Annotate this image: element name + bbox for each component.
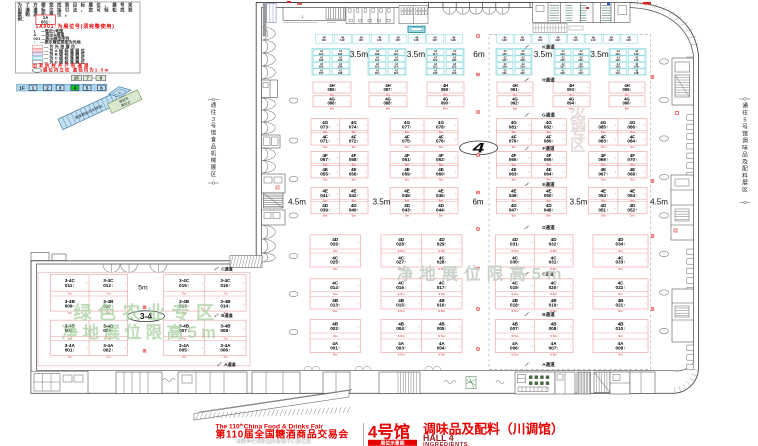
svg-text:往: 往 <box>211 108 217 116</box>
svg-text:057↑: 057↑ <box>320 157 330 162</box>
svg-text:6m: 6m <box>547 163 552 167</box>
svg-text:9m: 9m <box>333 334 338 338</box>
svg-text:5m: 5m <box>323 130 328 134</box>
svg-text:品: 品 <box>211 143 216 150</box>
svg-text:120↑: 120↑ <box>452 58 458 62</box>
svg-text:148↑: 148↑ <box>634 71 640 75</box>
svg-text:5m: 5m <box>405 130 410 134</box>
svg-text:042↑: 042↑ <box>349 193 359 198</box>
svg-text:9m: 9m <box>618 309 623 313</box>
svg-text:5m: 5m <box>138 285 148 292</box>
svg-text:3.5m: 3.5m <box>373 198 391 207</box>
svg-text:085↑: 085↑ <box>327 87 336 92</box>
svg-text:3.5m: 3.5m <box>407 49 426 59</box>
svg-text:043↑: 043↑ <box>402 207 412 212</box>
svg-text:089↑: 089↑ <box>441 87 450 92</box>
svg-text:007↑: 007↑ <box>510 326 520 331</box>
svg-text:7m: 7m <box>68 292 73 296</box>
svg-text:5m: 5m <box>547 130 552 134</box>
svg-text:3.5m: 3.5m <box>534 49 553 59</box>
svg-text:052↑: 052↑ <box>627 207 637 212</box>
svg-text:031↑: 031↑ <box>549 260 559 265</box>
svg-text:060↑: 060↑ <box>436 172 446 177</box>
svg-text:135↑: 135↑ <box>395 38 401 42</box>
svg-text:5: 5 <box>86 86 89 92</box>
svg-text:7m: 7m <box>182 355 187 359</box>
svg-text:083↑: 083↑ <box>598 139 608 144</box>
svg-text:016↑: 016↑ <box>396 285 406 290</box>
svg-text:及: 及 <box>742 159 748 166</box>
svg-text:102↑: 102↑ <box>338 52 344 56</box>
svg-text:128↑: 128↑ <box>520 58 526 62</box>
svg-text:展位内立柱 直径均为1.5m: 展位内立柱 直径均为1.5m <box>43 67 109 74</box>
svg-text:2: 2 <box>46 86 49 92</box>
svg-text:6m: 6m <box>473 49 485 59</box>
svg-text:146↑: 146↑ <box>634 65 640 69</box>
svg-text:6m: 6m <box>439 163 444 167</box>
svg-text:116↑: 116↑ <box>394 71 399 75</box>
svg-text:展: 展 <box>742 180 748 187</box>
svg-text:食: 食 <box>211 136 217 144</box>
svg-text:086↑: 086↑ <box>327 101 336 106</box>
svg-text:6.5m: 6.5m <box>550 292 557 296</box>
svg-text:134↑: 134↑ <box>578 52 584 56</box>
svg-text:6.5m: 6.5m <box>512 292 519 296</box>
svg-text:002↑: 002↑ <box>330 326 340 331</box>
svg-text:展: 展 <box>211 164 217 171</box>
svg-text:019↑: 019↑ <box>510 285 520 290</box>
svg-text:081↑: 081↑ <box>509 124 519 129</box>
svg-text:5m: 5m <box>512 130 517 134</box>
svg-text:073↑: 073↑ <box>320 124 330 129</box>
svg-text:066↑: 066↑ <box>544 157 554 162</box>
svg-text:072↑: 072↑ <box>349 139 359 144</box>
svg-text:076↑: 076↑ <box>436 139 446 144</box>
svg-text:6.5m: 6.5m <box>398 334 405 338</box>
svg-text:8m: 8m <box>625 107 630 111</box>
svg-text:馆: 馆 <box>742 130 748 138</box>
svg-text:044↑: 044↑ <box>436 207 446 212</box>
svg-text:7m: 7m <box>68 311 73 315</box>
svg-text:6m: 6m <box>512 163 517 167</box>
svg-text:7m: 7m <box>106 292 111 296</box>
svg-text:5m: 5m <box>630 130 635 134</box>
svg-text:039↑: 039↑ <box>320 207 330 212</box>
svg-text:063↑: 063↑ <box>509 172 519 177</box>
svg-text:6m: 6m <box>323 199 328 203</box>
svg-text:6m: 6m <box>405 163 410 167</box>
svg-text:净地展位限高5m: 净地展位限高5m <box>62 322 221 342</box>
svg-text:料: 料 <box>742 172 748 180</box>
svg-text:095↑: 095↑ <box>622 87 631 92</box>
svg-text:8m: 8m <box>330 107 335 111</box>
svg-text:144↑: 144↑ <box>591 38 597 42</box>
svg-text:046↑: 046↑ <box>436 193 446 198</box>
svg-text:5m: 5m <box>601 130 606 134</box>
svg-text:8: 8 <box>100 76 103 81</box>
svg-text:9m: 9m <box>618 267 623 271</box>
svg-text:4: 4 <box>73 86 76 92</box>
svg-text:031↑: 031↑ <box>510 242 520 247</box>
svg-text:5m: 5m <box>512 145 517 149</box>
svg-text:026↑: 026↑ <box>330 242 340 247</box>
svg-text:005↑: 005↑ <box>179 348 189 353</box>
svg-text:6m: 6m <box>512 199 517 203</box>
svg-text:130↑: 130↑ <box>520 65 526 69</box>
svg-text:通: 通 <box>742 102 748 110</box>
svg-text:G通道: G通道 <box>542 112 555 119</box>
svg-text:3.5m: 3.5m <box>590 49 609 59</box>
svg-text:109↑: 109↑ <box>375 52 381 56</box>
svg-text:6m: 6m <box>352 199 357 203</box>
svg-text:028↑: 028↑ <box>396 242 406 247</box>
svg-text:6.5m: 6.5m <box>398 249 405 253</box>
svg-text:090↑: 090↑ <box>441 101 450 106</box>
svg-text:B通道: B通道 <box>221 312 233 319</box>
svg-text:B通道: B通道 <box>542 311 555 318</box>
svg-text:5m: 5m <box>439 214 444 218</box>
svg-text:112↑: 112↑ <box>394 58 399 62</box>
svg-text:002↑: 002↑ <box>103 348 113 353</box>
svg-text:118↑: 118↑ <box>452 52 457 56</box>
svg-text:140↑: 140↑ <box>578 71 584 75</box>
svg-text:9m: 9m <box>333 309 338 313</box>
svg-text:006↑: 006↑ <box>510 346 520 351</box>
svg-text:114↑: 114↑ <box>394 65 399 69</box>
svg-text:5m: 5m <box>439 178 444 182</box>
svg-text:145↑: 145↑ <box>609 38 615 42</box>
svg-text:9m: 9m <box>333 249 338 253</box>
svg-text:069↑: 069↑ <box>598 157 608 162</box>
svg-text:6m: 6m <box>630 199 635 203</box>
svg-text:6m: 6m <box>601 199 606 203</box>
svg-text:082↑: 082↑ <box>544 124 554 129</box>
svg-text:7m: 7m <box>223 337 228 341</box>
svg-text:015↑: 015↑ <box>396 303 406 308</box>
svg-text:055↑: 055↑ <box>320 172 330 177</box>
svg-text:053↑: 053↑ <box>598 193 608 198</box>
svg-text:配: 配 <box>742 166 748 173</box>
svg-text:号: 号 <box>742 124 748 131</box>
svg-text:110↑: 110↑ <box>394 52 399 56</box>
svg-text:6.5m: 6.5m <box>550 249 557 253</box>
svg-text:096↑: 096↑ <box>622 101 631 106</box>
svg-text:132↑: 132↑ <box>340 38 346 42</box>
svg-text:净地展位限高5m: 净地展位限高5m <box>397 264 568 284</box>
svg-text:049↑: 049↑ <box>509 193 519 198</box>
svg-text:064↑: 064↑ <box>544 172 554 177</box>
svg-text:139↑: 139↑ <box>560 71 566 75</box>
svg-text:6.5m: 6.5m <box>398 309 405 313</box>
svg-text:F通道: F通道 <box>543 145 555 152</box>
svg-text:019↑: 019↑ <box>549 303 559 308</box>
svg-text:6.5m: 6.5m <box>438 334 445 338</box>
svg-text:6.5m: 6.5m <box>550 334 557 338</box>
svg-text:047↑: 047↑ <box>509 207 519 212</box>
svg-text:062↑: 062↑ <box>436 157 446 162</box>
svg-text:087↑: 087↑ <box>383 87 392 92</box>
svg-text:5m: 5m <box>405 178 410 182</box>
svg-text:071↑: 071↑ <box>320 139 330 144</box>
svg-text:145↑: 145↑ <box>615 65 621 69</box>
svg-text:124↑: 124↑ <box>452 71 458 75</box>
svg-text:1F: 1F <box>19 86 25 92</box>
svg-text:7m: 7m <box>223 355 228 359</box>
svg-text:6m: 6m <box>547 199 552 203</box>
svg-text:004↑: 004↑ <box>396 326 406 331</box>
svg-text:068↑: 068↑ <box>627 172 637 177</box>
svg-text:111↑: 111↑ <box>375 58 380 62</box>
svg-text:040↑: 040↑ <box>349 207 359 212</box>
svg-text:133↑: 133↑ <box>358 38 364 42</box>
svg-text:5: 5 <box>743 118 746 124</box>
svg-text:味: 味 <box>742 144 748 152</box>
svg-text:140↑: 140↑ <box>520 38 526 42</box>
svg-text:003↑: 003↑ <box>396 346 406 351</box>
svg-text:6.5m: 6.5m <box>438 292 445 296</box>
svg-text:6.5m: 6.5m <box>512 249 519 253</box>
svg-text:5m: 5m <box>630 178 635 182</box>
svg-text:013↑: 013↑ <box>330 303 340 308</box>
svg-text:4.5m: 4.5m <box>650 198 668 207</box>
svg-text:6m: 6m <box>472 198 483 207</box>
svg-text:141↑: 141↑ <box>615 52 621 56</box>
svg-text:032↑: 032↑ <box>549 242 559 247</box>
svg-text:机: 机 <box>211 149 217 157</box>
svg-text:092↑: 092↑ <box>510 101 519 106</box>
svg-text:136↑: 136↑ <box>578 58 584 62</box>
svg-text:125↑: 125↑ <box>502 52 508 56</box>
svg-text:054↑: 054↑ <box>627 193 637 198</box>
svg-text:022↑: 022↑ <box>616 285 626 290</box>
svg-text:2F: 2F <box>74 76 80 81</box>
svg-text:E通道: E通道 <box>542 181 555 188</box>
svg-text:007↑: 007↑ <box>549 346 559 351</box>
svg-text:成都世纪城新国际会展中心展位图: 成都世纪城新国际会展中心展位图 <box>236 438 311 445</box>
svg-text:077↑: 077↑ <box>402 124 412 129</box>
svg-text:5m: 5m <box>630 214 635 218</box>
svg-text:7m: 7m <box>68 355 73 359</box>
svg-text:056↑: 056↑ <box>349 172 359 177</box>
svg-text:088↑: 088↑ <box>383 101 392 106</box>
svg-text:C通道: C通道 <box>221 265 233 272</box>
svg-text:103↑: 103↑ <box>319 58 325 62</box>
svg-text:134↑: 134↑ <box>377 38 383 42</box>
svg-text:119↑: 119↑ <box>433 58 438 62</box>
svg-text:139↑: 139↑ <box>502 38 508 42</box>
svg-text:027↑: 027↑ <box>396 260 406 265</box>
svg-text:up: up <box>118 91 122 95</box>
svg-text:K通道: K通道 <box>542 44 555 51</box>
svg-text:132↑: 132↑ <box>520 71 526 75</box>
svg-text:093↑: 093↑ <box>567 87 576 92</box>
svg-text:3.5m: 3.5m <box>350 49 369 59</box>
svg-text:5m: 5m <box>630 145 635 149</box>
svg-text:080↑: 080↑ <box>544 139 554 144</box>
svg-text:5m: 5m <box>352 130 357 134</box>
svg-text:135↑: 135↑ <box>560 58 566 62</box>
svg-text:058↑: 058↑ <box>349 157 359 162</box>
svg-text:9m: 9m <box>618 334 623 338</box>
svg-text:6m: 6m <box>630 163 635 167</box>
svg-text:5m: 5m <box>547 178 552 182</box>
svg-text:4.5m: 4.5m <box>288 198 306 207</box>
svg-text:7m: 7m <box>223 292 228 296</box>
svg-text:1.: 1. <box>302 15 305 19</box>
svg-text:5m: 5m <box>439 145 444 149</box>
svg-text:051↑: 051↑ <box>598 207 608 212</box>
svg-text:5m: 5m <box>512 214 517 218</box>
svg-text:例：: 例： <box>18 15 27 22</box>
svg-text:074↑: 074↑ <box>349 124 359 129</box>
svg-text:113↑: 113↑ <box>375 65 380 69</box>
svg-text:7m: 7m <box>182 292 187 296</box>
svg-text:5m: 5m <box>512 178 517 182</box>
svg-text:041↑: 041↑ <box>320 193 330 198</box>
svg-text:141↑: 141↑ <box>538 38 544 42</box>
svg-text:8m: 8m <box>443 107 448 111</box>
svg-text:5m: 5m <box>405 145 410 149</box>
svg-text:4号馆: 4号馆 <box>368 422 410 442</box>
svg-text:033↑: 033↑ <box>616 260 626 265</box>
svg-text:6m: 6m <box>352 163 357 167</box>
svg-text:9m: 9m <box>333 292 338 296</box>
svg-text:048↑: 048↑ <box>544 207 554 212</box>
svg-text:014↑: 014↑ <box>220 303 230 308</box>
svg-text:6.5m: 6.5m <box>512 309 519 313</box>
svg-text:6.5m: 6.5m <box>438 249 445 253</box>
svg-text:5m: 5m <box>439 130 444 134</box>
svg-text:050↑: 050↑ <box>544 193 554 198</box>
svg-text:086↑: 086↑ <box>627 124 637 129</box>
svg-text:6m: 6m <box>405 199 410 203</box>
svg-text:004↑: 004↑ <box>437 346 447 351</box>
svg-text:143↑: 143↑ <box>573 38 579 42</box>
svg-text:5m: 5m <box>323 145 328 149</box>
svg-text:5m: 5m <box>547 214 552 218</box>
svg-text:6.5m: 6.5m <box>398 292 405 296</box>
svg-text:6.5m: 6.5m <box>512 334 519 338</box>
svg-text:5m: 5m <box>323 178 328 182</box>
svg-text:H通道: H通道 <box>542 76 555 83</box>
svg-text:往: 往 <box>742 109 748 117</box>
svg-text:8m: 8m <box>386 107 391 111</box>
svg-text:INGREDIENTS: INGREDIENTS <box>423 442 468 446</box>
svg-text:067↑: 067↑ <box>598 172 608 177</box>
svg-text:029↑: 029↑ <box>437 242 447 247</box>
svg-text:6: 6 <box>100 86 103 92</box>
svg-text:016↑: 016↑ <box>437 303 447 308</box>
svg-text:085↑: 085↑ <box>598 124 608 129</box>
svg-text:001↑: 001↑ <box>330 346 340 351</box>
svg-text:5m: 5m <box>601 178 606 182</box>
svg-text:区: 区 <box>742 187 748 194</box>
svg-text:6.5m: 6.5m <box>398 352 405 356</box>
svg-text:061↑: 061↑ <box>402 157 412 162</box>
svg-text:6.5m: 6.5m <box>438 309 445 313</box>
svg-text:070↑: 070↑ <box>627 157 637 162</box>
svg-text:6.5m: 6.5m <box>438 352 445 356</box>
svg-text:012↑: 012↑ <box>103 283 113 288</box>
svg-text:147↑: 147↑ <box>615 71 621 75</box>
svg-text:030↑: 030↑ <box>510 260 520 265</box>
svg-text:142↑: 142↑ <box>555 38 561 42</box>
svg-text:1: 1 <box>32 86 35 92</box>
svg-text:馆: 馆 <box>211 129 217 137</box>
svg-text:075↑: 075↑ <box>402 139 412 144</box>
svg-text:品: 品 <box>742 152 748 159</box>
svg-text:绿色农业专区: 绿色农业专区 <box>74 302 221 323</box>
svg-text:6m: 6m <box>323 163 328 167</box>
svg-text:6.5m: 6.5m <box>550 352 557 356</box>
svg-text:018↑: 018↑ <box>510 303 520 308</box>
svg-text:104↑: 104↑ <box>338 58 344 62</box>
svg-text:008↑: 008↑ <box>220 328 230 333</box>
svg-text:021↑: 021↑ <box>616 303 626 308</box>
svg-text:5m: 5m <box>323 214 328 218</box>
svg-text:059↑: 059↑ <box>402 172 412 177</box>
svg-text:123↑: 123↑ <box>433 71 439 75</box>
svg-text:D通道: D通道 <box>542 224 555 231</box>
svg-text:001↑: 001↑ <box>65 348 75 353</box>
svg-text:078↑: 078↑ <box>436 124 446 129</box>
svg-text:4: 4 <box>471 140 484 155</box>
svg-text:014↑: 014↑ <box>330 285 340 290</box>
svg-text:5m: 5m <box>405 214 410 218</box>
svg-text:131↑: 131↑ <box>321 38 327 42</box>
svg-text:5m: 5m <box>601 145 606 149</box>
svg-text:010↑: 010↑ <box>616 326 626 331</box>
svg-text:137↑: 137↑ <box>560 65 566 69</box>
svg-text:8m: 8m <box>513 107 518 111</box>
svg-text:137↑: 137↑ <box>432 38 438 42</box>
svg-text:144↑: 144↑ <box>634 58 640 62</box>
svg-text:034↑: 034↑ <box>616 242 626 247</box>
svg-text:105↑: 105↑ <box>319 65 325 69</box>
svg-text:3: 3 <box>212 117 215 123</box>
svg-text:005↑: 005↑ <box>437 326 447 331</box>
svg-text:6m: 6m <box>601 163 606 167</box>
svg-text:006↑: 006↑ <box>220 348 230 353</box>
svg-text:127↑: 127↑ <box>502 58 508 62</box>
svg-text:117↑: 117↑ <box>433 52 438 56</box>
svg-text:133↑: 133↑ <box>560 52 566 56</box>
svg-text:138↑: 138↑ <box>578 65 584 69</box>
svg-text:084↑: 084↑ <box>627 139 637 144</box>
svg-text:016↑: 016↑ <box>220 283 230 288</box>
svg-text:108↑: 108↑ <box>338 71 344 75</box>
svg-text:通: 通 <box>211 101 217 109</box>
svg-text:122↑: 122↑ <box>452 65 458 69</box>
svg-text:3: 3 <box>59 86 62 92</box>
svg-text:091↑: 091↑ <box>510 87 519 92</box>
svg-text:A通道: A通道 <box>224 361 236 368</box>
svg-text:079↑: 079↑ <box>509 139 519 144</box>
svg-text:6.5m: 6.5m <box>512 352 519 356</box>
svg-text:142↑: 142↑ <box>634 52 640 56</box>
svg-text:065↑: 065↑ <box>509 157 519 162</box>
svg-text:126↑: 126↑ <box>520 52 526 56</box>
svg-text:025↑: 025↑ <box>330 260 340 265</box>
svg-text:9m: 9m <box>618 292 623 296</box>
svg-text:5m: 5m <box>601 214 606 218</box>
svg-text:146↑: 146↑ <box>626 38 632 42</box>
svg-text:区: 区 <box>570 136 586 154</box>
svg-text:械: 械 <box>211 156 217 164</box>
svg-text:调: 调 <box>742 137 748 145</box>
svg-text:138↑: 138↑ <box>451 38 457 42</box>
svg-text:9m: 9m <box>618 352 623 356</box>
